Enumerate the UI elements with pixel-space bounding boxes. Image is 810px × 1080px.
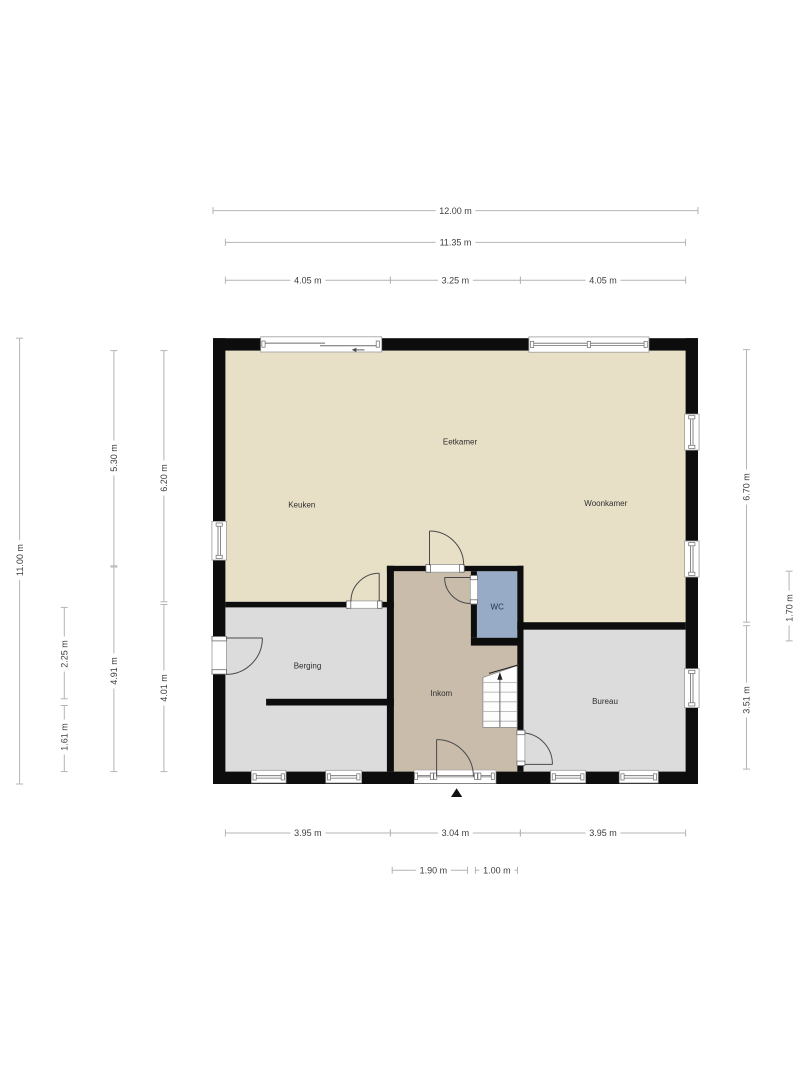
svg-text:5.30 m: 5.30 m bbox=[109, 444, 119, 472]
svg-text:Woonkamer: Woonkamer bbox=[584, 499, 627, 508]
svg-text:6.20 m: 6.20 m bbox=[159, 464, 169, 492]
svg-text:3.95 m: 3.95 m bbox=[294, 828, 322, 838]
svg-text:3.25 m: 3.25 m bbox=[442, 275, 470, 285]
svg-text:4.05 m: 4.05 m bbox=[589, 275, 617, 285]
svg-text:Bureau: Bureau bbox=[592, 697, 618, 706]
svg-text:1.70 m: 1.70 m bbox=[784, 594, 794, 622]
svg-text:11.35 m: 11.35 m bbox=[440, 238, 472, 248]
svg-text:11.00 m: 11.00 m bbox=[15, 544, 25, 576]
svg-text:2.25 m: 2.25 m bbox=[60, 640, 70, 668]
svg-text:3.51 m: 3.51 m bbox=[742, 686, 752, 714]
svg-text:12.00 m: 12.00 m bbox=[439, 206, 472, 216]
svg-text:6.70 m: 6.70 m bbox=[742, 473, 752, 501]
svg-text:WC: WC bbox=[491, 602, 505, 611]
svg-text:3.95 m: 3.95 m bbox=[589, 828, 617, 838]
svg-text:Eetkamer: Eetkamer bbox=[443, 438, 478, 447]
svg-text:Inkom: Inkom bbox=[430, 689, 452, 698]
svg-text:Berging: Berging bbox=[294, 661, 322, 670]
svg-text:4.01 m: 4.01 m bbox=[159, 674, 169, 702]
svg-text:4.91 m: 4.91 m bbox=[109, 657, 119, 685]
svg-text:1.90 m: 1.90 m bbox=[420, 865, 448, 875]
svg-text:4.05 m: 4.05 m bbox=[294, 275, 322, 285]
svg-text:1.61 m: 1.61 m bbox=[60, 723, 70, 751]
svg-text:1.00 m: 1.00 m bbox=[483, 865, 511, 875]
svg-text:3.04 m: 3.04 m bbox=[442, 828, 470, 838]
svg-text:Keuken: Keuken bbox=[288, 500, 315, 509]
